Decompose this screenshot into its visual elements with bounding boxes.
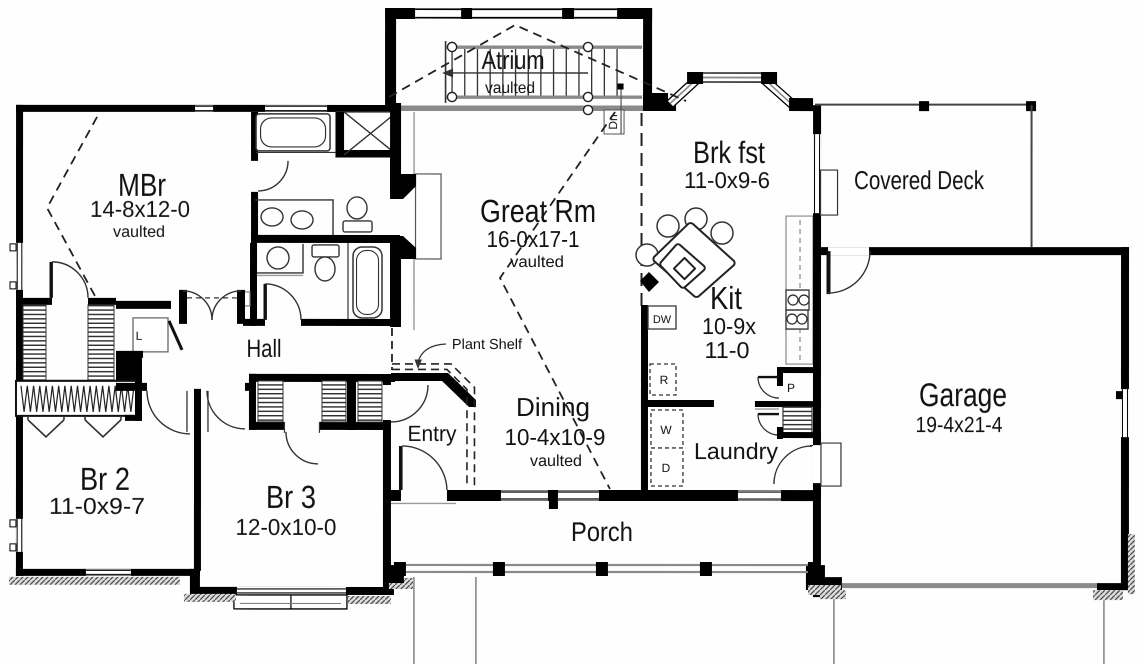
svg-text:Hall: Hall xyxy=(246,335,281,363)
svg-text:Entry: Entry xyxy=(407,421,456,446)
svg-text:Dn: Dn xyxy=(606,114,620,129)
svg-text:vaulted: vaulted xyxy=(530,453,582,470)
svg-text:R: R xyxy=(660,373,669,387)
svg-text:Porch: Porch xyxy=(571,517,633,547)
svg-text:Laundry: Laundry xyxy=(694,438,779,464)
svg-text:P: P xyxy=(787,381,795,395)
svg-text:vaulted: vaulted xyxy=(113,224,165,241)
svg-text:Br 2: Br 2 xyxy=(80,461,130,497)
svg-text:14-8x12-0: 14-8x12-0 xyxy=(90,196,190,222)
svg-text:16-0x17-1: 16-0x17-1 xyxy=(487,226,580,252)
svg-text:11-0x9-6: 11-0x9-6 xyxy=(684,167,770,193)
svg-text:Covered Deck: Covered Deck xyxy=(854,165,985,195)
svg-text:10-4x10-9: 10-4x10-9 xyxy=(504,424,605,450)
svg-text:D: D xyxy=(662,461,671,475)
svg-text:Atrium: Atrium xyxy=(482,45,545,75)
svg-text:vaulted: vaulted xyxy=(485,80,535,97)
svg-text:Kit: Kit xyxy=(710,280,742,316)
svg-text:Dining: Dining xyxy=(516,392,590,422)
svg-text:10-9x: 10-9x xyxy=(702,313,756,339)
svg-text:11-0x9-7: 11-0x9-7 xyxy=(49,493,145,519)
svg-text:12-0x10-0: 12-0x10-0 xyxy=(235,514,336,540)
svg-text:vaulted: vaulted xyxy=(510,254,564,271)
svg-text:Garage: Garage xyxy=(919,376,1007,413)
svg-text:Br 3: Br 3 xyxy=(266,479,316,515)
svg-text:DW: DW xyxy=(653,314,672,326)
svg-text:Plant Shelf: Plant Shelf xyxy=(452,337,523,353)
svg-text:Brk fst: Brk fst xyxy=(693,135,765,170)
svg-text:W: W xyxy=(660,423,672,437)
svg-text:L: L xyxy=(136,329,143,343)
svg-text:19-4x21-4: 19-4x21-4 xyxy=(915,412,1002,437)
svg-text:11-0: 11-0 xyxy=(704,337,749,363)
svg-text:Great Rm: Great Rm xyxy=(480,193,596,229)
